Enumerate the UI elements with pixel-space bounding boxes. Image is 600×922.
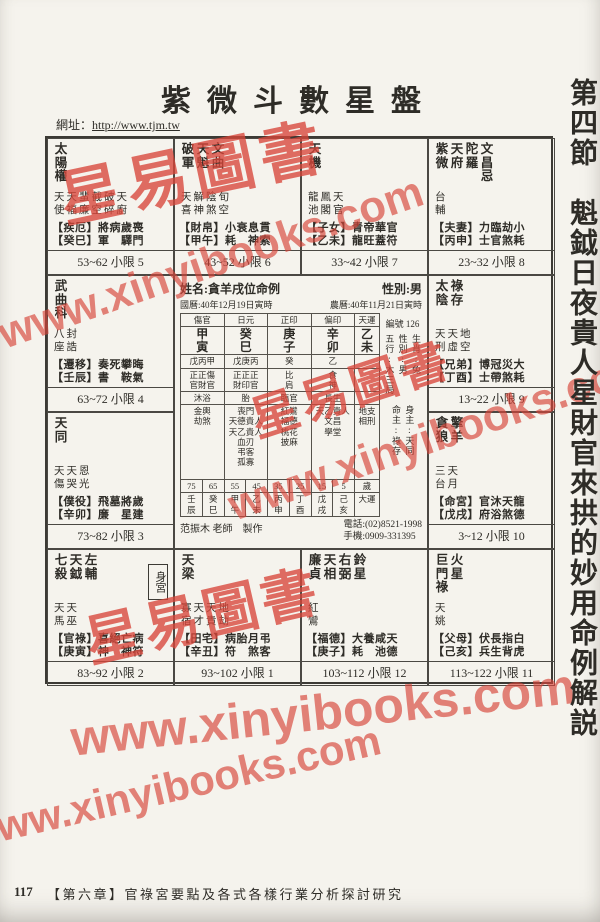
scanned-book-page: 紫微斗數星盤 網址：http://www.tjm.tw 太 陽 權 天天蜚截破天…	[0, 0, 600, 922]
chart-gender: 性別:男	[382, 280, 422, 297]
main-stars: 巨 門 祿火 星	[435, 554, 465, 595]
pillar-stars-row: 金輿 劫煞喪門 天德貴人 天乙貴人 血刃 弔客 孤寡紅鸞 福德 桃花 披麻天乙貴…	[181, 405, 379, 479]
chapter-line: 【第六章】官祿宮要點及各式各樣行業分析探討研究	[47, 884, 404, 903]
palace-cell-career: 七 殺天 鉞左 輔 身宮 天天馬巫 【官祿】喜絕亡病【庚寅】神 神符 83~92…	[47, 549, 174, 686]
minor-stars: 紅鸞	[308, 602, 321, 629]
minor-stars: 天天恩傷哭光	[54, 465, 92, 492]
palace-label: 【父母】伏長指白【己亥】兵生背虎	[433, 633, 525, 661]
minor-limit-range: 103~112 小限 12	[302, 661, 427, 685]
pillar-ten-gods-row: 正正傷 官財官正正正 財印官比 肩食 神	[181, 369, 379, 392]
main-stars: 廉 貞天 相右 弼鈴 星	[308, 554, 368, 581]
lords-group: 命主:祿存身主:天同	[391, 405, 415, 456]
palace-label: 【遷移】奏死攀晦【壬辰】書 鞍氣	[52, 359, 144, 387]
palace-cell-wealth: 破 軍天 魁文 曲 天解陰旬喜神煞空 【財帛】小衰息貫【甲午】耗 神索 43~5…	[174, 138, 301, 275]
pillar-stems-row: 甲 寅癸 巳庚 子辛 卯乙 未	[181, 327, 379, 355]
minor-stars: 寡天天地宿才貴劫	[181, 602, 231, 629]
maker-credit: 范振木 老師 製作	[180, 520, 263, 535]
main-stars: 武 曲 科	[54, 280, 69, 321]
minor-stars: 八封座誥	[54, 328, 79, 355]
body-palace-badge: 身宮	[148, 564, 168, 600]
birth-info-panel: 姓名:貪羊戌位命例 性別:男 國曆:40年12月19日寅時 農曆:40年11月2…	[174, 275, 428, 549]
main-stars: 天 同	[54, 417, 69, 444]
minor-limit-range: 113~122 小限 11	[429, 661, 554, 685]
palace-label: 【夫妻】力臨劫小【丙申】士官煞耗	[433, 222, 525, 250]
minor-limit-range: 63~72 小限 4	[48, 387, 173, 411]
main-stars: 貪 狼擎 羊	[435, 417, 465, 444]
watermark-url-bottom-left: www.xinyibooks.com	[0, 716, 385, 858]
minor-stars: 三天台月	[435, 465, 460, 492]
luck-pillars-row: 壬 辰癸 巳甲 午乙 未丙 申丁 酉戊 戌己 亥大運	[181, 493, 379, 515]
four-pillars-table: 傷官日元正印偏印天運 甲 寅癸 巳庚 子辛 卯乙 未 戊丙甲戊庚丙癸乙 正正傷 …	[180, 313, 380, 480]
solar-date: 國曆:40年12月19日寅時	[180, 298, 273, 311]
phone-number: 電話:(02)8521-1998	[343, 520, 422, 530]
palace-cell-parents: 巨 門 祿火 星 天姚 【父母】伏長指白【己亥】兵生背虎 113~122 小限 …	[428, 549, 555, 686]
lunar-date: 農曆:40年11月21日寅時	[330, 298, 422, 311]
palace-label: 【疾厄】將病歲喪【癸巳】軍 驛門	[52, 222, 144, 250]
page-title: 紫微斗數星盤	[45, 76, 553, 120]
url-label: 網址：	[56, 118, 92, 132]
palace-cell-servants: 天 同 天天恩傷哭光 【僕役】飛墓將歲【辛卯】廉 星建 73~82 小限 3	[47, 412, 174, 549]
minor-limit-range: 23~32 小限 8	[429, 250, 554, 274]
main-stars: 破 軍天 魁文 曲	[181, 143, 226, 170]
minor-limit-range: 53~62 小限 5	[48, 250, 173, 274]
pillar-stages-row: 沐浴胎臨官長生	[181, 392, 379, 405]
minor-limit-range: 93~102 小限 1	[175, 661, 300, 685]
palace-label: 【僕役】飛墓將歲【辛卯】廉 星建	[52, 496, 144, 524]
palace-cell-spouse: 紫 微天 府陀 羅文 昌 忌 台輔 【夫妻】力臨劫小【丙申】士官煞耗 23~32…	[428, 138, 555, 275]
chart-serial: 編號 126	[386, 317, 420, 330]
palace-cell-children: 天 機 龍鳳天池閣官 【子女】青帝華官【乙未】龍旺蓋符 33~42 小限 7	[301, 138, 428, 275]
website-url: http://www.tjm.tw	[92, 118, 180, 132]
palace-cell-fortune: 廉 貞天 相右 弼鈴 星 紅鸞 【福德】大養咸天【庚子】耗 池德 103~112…	[301, 549, 428, 686]
palace-cell-property: 天 梁 寡天天地宿才貴劫 【田宅】病胎月弔【辛丑】符 煞客 93~102 小限 …	[174, 549, 301, 686]
pillar-hidden-stems-row: 戊丙甲戊庚丙癸乙	[181, 355, 379, 368]
minor-limit-range: 33~42 小限 7	[302, 250, 427, 274]
minor-stars: 龍鳳天池閣官	[308, 191, 346, 218]
palace-label: 【田宅】病胎月弔【辛丑】符 煞客	[179, 633, 271, 661]
minor-limit-range: 43~52 小限 6	[175, 250, 300, 274]
page-number: 117	[14, 884, 33, 900]
minor-limit-range: 3~12 小限 10	[429, 524, 554, 548]
minor-stars: 天姚	[435, 602, 448, 629]
pillar-headers-row: 傷官日元正印偏印天運	[181, 314, 379, 327]
minor-stars: 天天地刑虛空	[435, 328, 473, 355]
section-heading-vertical: 第四節 魁鉞日夜貴人星財官來拱的妙用命例解説	[565, 78, 597, 738]
palace-cell-travel: 武 曲 科 八封座誥 【遷移】奏死攀晦【壬辰】書 鞍氣 63~72 小限 4	[47, 275, 174, 412]
main-stars: 天 機	[308, 143, 323, 170]
ziwei-chart-grid: 太 陽 權 天天蜚截破天使福廉空碎廚 【疾厄】將病歲喪【癸巳】軍 驛門 53~6…	[45, 136, 553, 684]
minor-limit-range: 73~82 小限 3	[48, 524, 173, 548]
main-stars: 紫 微天 府陀 羅文 昌 忌	[435, 143, 495, 184]
main-stars: 太 陽 權	[54, 143, 69, 184]
attrs-group: 五行:木三局性別:男生肖:兔	[384, 334, 421, 395]
palace-cell-illness: 太 陽 權 天天蜚截破天使福廉空碎廚 【疾厄】將病歲喪【癸巳】軍 驛門 53~6…	[47, 138, 174, 275]
mobile-number: 手機:0909-331395	[343, 532, 415, 542]
minor-limit-range: 83~92 小限 2	[48, 661, 173, 685]
contact-phones: 電話:(02)8521-1998 手機:0909-331395	[343, 520, 422, 544]
minor-stars: 天解陰旬喜神煞空	[181, 191, 231, 218]
main-stars: 太 陰祿 存	[435, 280, 465, 307]
palace-label: 【福德】大養咸天【庚子】耗 池德	[306, 633, 398, 661]
palace-cell-siblings: 太 陰祿 存 天天地刑虛空 【兄弟】博冠災大【丁酉】士帶煞耗 13~22 小限 …	[428, 275, 555, 412]
luck-ages-row: 756555453525155歲	[181, 480, 379, 493]
minor-stars: 天天馬巫	[54, 602, 79, 629]
palace-cell-life: 貪 狼擎 羊 三天台月 【命宮】官沐天龍【戊戌】府浴煞德 3~12 小限 10	[428, 412, 555, 549]
minor-stars: 天天蜚截破天使福廉空碎廚	[54, 191, 129, 218]
minor-limit-range: 13~22 小限 9	[429, 387, 554, 411]
palace-label: 【官祿】喜絕亡病【庚寅】神 神符	[52, 633, 144, 661]
palace-label: 【兄弟】博冠災大【丁酉】士帶煞耗	[433, 359, 525, 387]
main-stars: 七 殺天 鉞左 輔	[54, 554, 99, 581]
chart-name: 姓名:貪羊戌位命例	[180, 280, 280, 297]
palace-label: 【財帛】小衰息貫【甲午】耗 神索	[179, 222, 271, 250]
minor-stars: 台輔	[435, 191, 448, 218]
main-stars: 天 梁	[181, 554, 196, 581]
palace-label: 【子女】青帝華官【乙未】龍旺蓋符	[306, 222, 398, 250]
palace-label: 【命宮】官沐天龍【戊戌】府浴煞德	[433, 496, 525, 524]
website-line: 網址：http://www.tjm.tw	[56, 116, 180, 133]
